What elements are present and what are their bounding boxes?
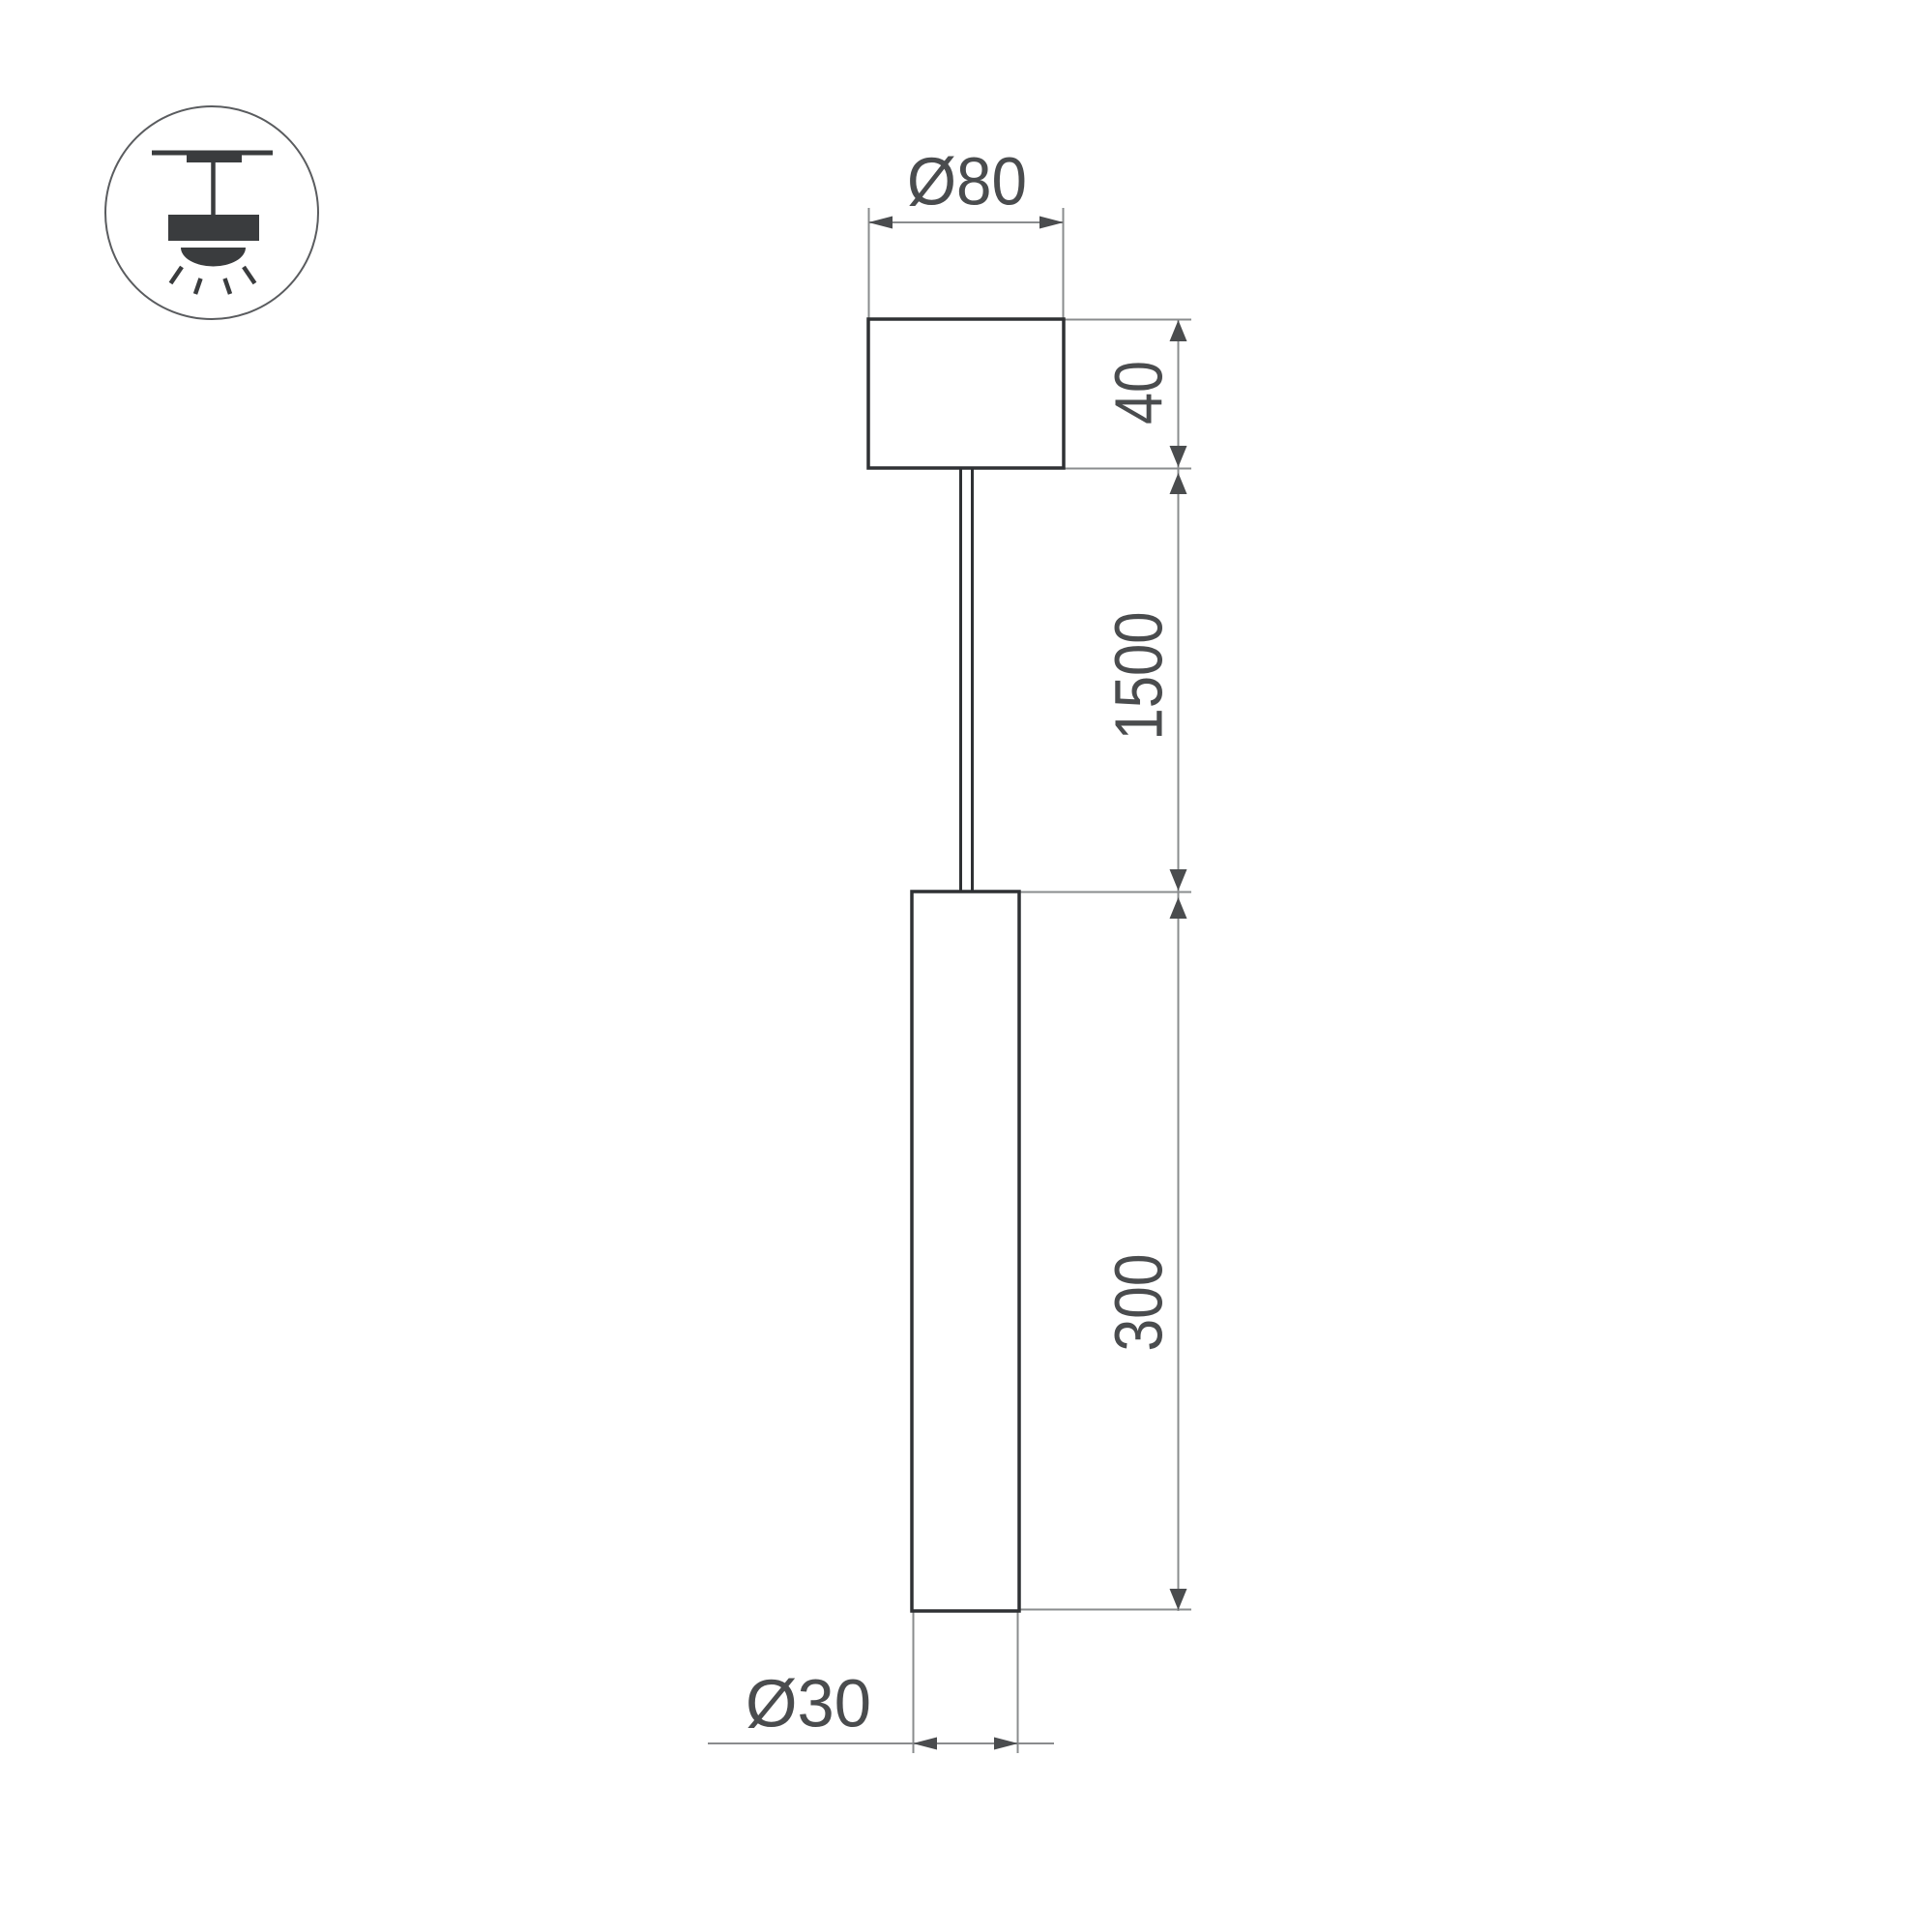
arrow-canopy-diameter-right [1039,217,1064,229]
arrow-suspension-length-top [1170,473,1187,494]
arrow-suspension-length-bottom [1170,869,1187,891]
label-tube-diameter: Ø30 [746,1666,871,1742]
arrow-canopy-diameter-left [868,217,893,229]
label-canopy-height: 40 [1101,361,1177,424]
icon-light-ray-2 [195,278,201,294]
icon-light-ray-3 [225,278,231,294]
arrow-canopy-height-bottom [1170,446,1187,467]
pendant-ceiling-light-icon [105,106,318,319]
arrow-tube-length-bottom [1170,1589,1187,1610]
arrow-tube-length-top [1170,897,1187,919]
icon-lamp-body [168,215,259,241]
arrow-tube-diameter-left [913,1738,937,1750]
canopy-outline [868,319,1064,468]
icon-light-ray-4 [244,267,255,283]
icon-light-ray-1 [171,267,183,283]
arrow-canopy-height-top [1170,320,1187,341]
label-canopy-diameter: Ø80 [907,144,1027,220]
label-tube-length: 300 [1101,1254,1177,1352]
drawing-canvas: Ø80 40 1500 300 Ø30 [0,0,1932,1932]
arrow-tube-diameter-right [994,1738,1018,1750]
tube-outline [912,892,1019,1611]
icon-light-dome [181,248,246,267]
label-suspension-length: 1500 [1101,612,1177,741]
